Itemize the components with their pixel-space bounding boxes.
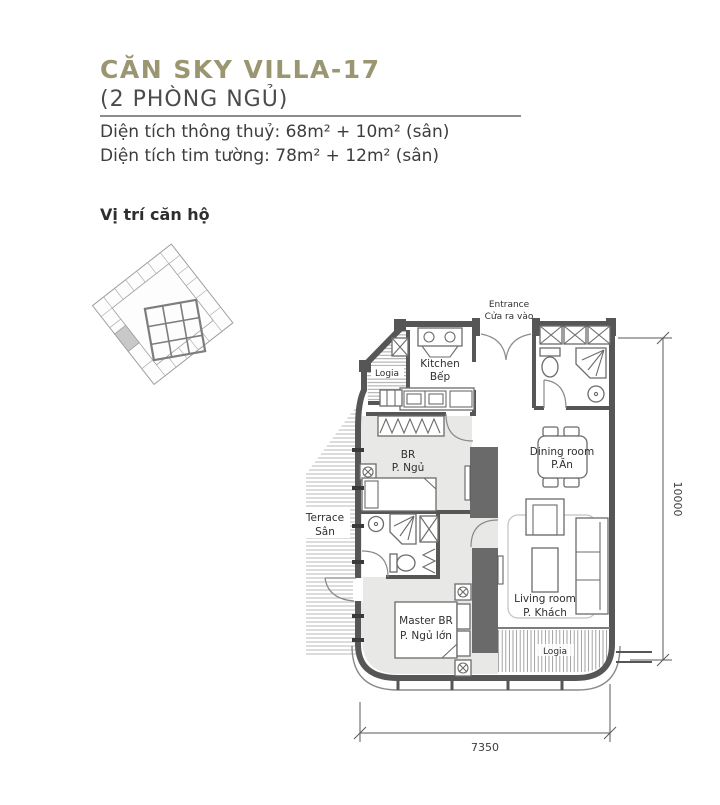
- sofa-icon: [576, 518, 608, 614]
- wardrobe-icon-br: [378, 416, 444, 436]
- floorplan-canvas: Entrance Cửa ra vào Kitchen Bếp Logia BR…: [0, 0, 720, 805]
- toilet-icon-top: [540, 348, 560, 377]
- floor-plan: Entrance Cửa ra vào Kitchen Bếp Logia BR…: [300, 300, 684, 754]
- living-label-en: Living room: [514, 593, 576, 605]
- master-label-en: Master BR: [399, 615, 453, 627]
- sink-icon-top: [588, 386, 604, 402]
- kitchen-label-vi: Bếp: [430, 371, 451, 383]
- toilet-icon-master: [390, 554, 415, 572]
- entrance-label-vi: Cửa ra vào: [485, 311, 534, 322]
- coffee-table-icon: [532, 548, 558, 592]
- living-label-vi: P. Khách: [523, 607, 567, 619]
- bed-icon-br: [362, 478, 436, 511]
- cooktop-icon: [418, 328, 462, 357]
- entrance-door-icon: [481, 334, 531, 360]
- bedroom-label-en: BR: [401, 449, 416, 461]
- nightstand-icon-master-bottom: [455, 660, 471, 676]
- bedroom-label-vi: P. Ngủ: [392, 462, 425, 474]
- armchair-icon: [526, 499, 564, 535]
- master-label-vi: P. Ngủ lớn: [400, 630, 452, 642]
- entrance-label-en: Entrance: [489, 300, 530, 310]
- nightstand-icon-master-top: [455, 584, 471, 600]
- dimension-width: 7350: [354, 684, 616, 754]
- sink-icon-master: [369, 517, 384, 532]
- logia-bottom-label: Logia: [543, 647, 567, 657]
- dimension-height-label: 10000: [671, 482, 684, 517]
- kitchen-label-en: Kitchen: [420, 358, 459, 370]
- dining-label-en: Dining room: [530, 446, 594, 458]
- shower-icon-top: [576, 348, 606, 378]
- terrace-label-vi: Sân: [315, 526, 335, 538]
- logia-top-label: Logia: [375, 369, 399, 379]
- building-locator: [93, 244, 233, 384]
- logia-appliance-icon: [380, 390, 402, 406]
- terrace-label-en: Terrace: [305, 512, 344, 524]
- dimension-height: 10000: [618, 332, 684, 666]
- bath-door-icon: [544, 380, 566, 408]
- dimension-width-label: 7350: [471, 741, 499, 754]
- column-block-upper: [470, 447, 498, 518]
- dining-label-vi: P.Ăn: [551, 458, 573, 471]
- kitchen-sink-icon: [400, 388, 474, 410]
- column-block-lower: [472, 548, 498, 653]
